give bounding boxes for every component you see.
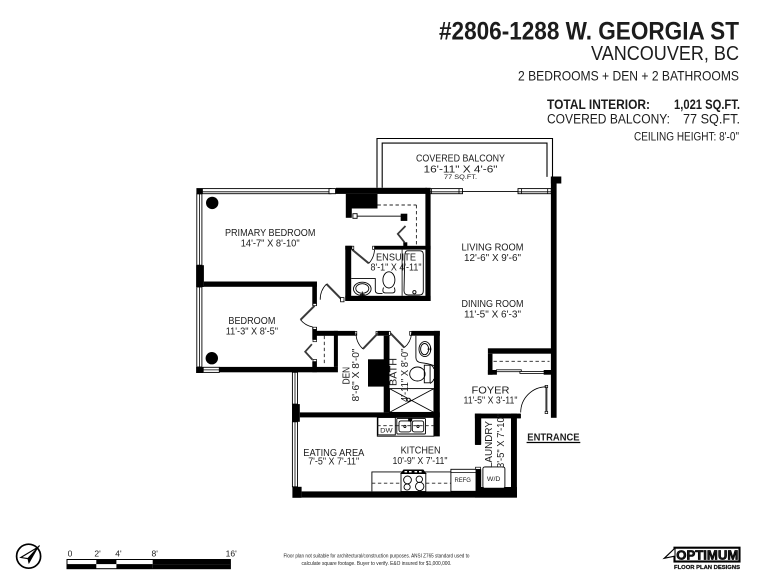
svg-text:4': 4' — [115, 548, 122, 558]
svg-text:TOTAL INTERIOR:: TOTAL INTERIOR: — [547, 97, 650, 112]
svg-text:KITCHEN: KITCHEN — [401, 446, 441, 457]
svg-text:2 BEDROOMS + DEN + 2 BATHROOMS: 2 BEDROOMS + DEN + 2 BATHROOMS — [518, 68, 739, 84]
svg-text:FLOOR PLAN DESIGNS: FLOOR PLAN DESIGNS — [674, 565, 740, 571]
svg-text:BATH: BATH — [388, 358, 399, 386]
svg-text:OPTIMUM: OPTIMUM — [676, 548, 738, 563]
svg-text:DINING ROOM: DINING ROOM — [462, 299, 524, 310]
svg-text:8': 8' — [152, 548, 159, 558]
svg-text:12'-6" X 9'-6": 12'-6" X 9'-6" — [464, 253, 521, 264]
svg-text:14'-7" X 8'-10": 14'-7" X 8'-10" — [241, 238, 300, 249]
svg-text:10'-9" X 7'-11": 10'-9" X 7'-11" — [393, 456, 448, 467]
svg-text:REFG: REFG — [454, 477, 471, 484]
svg-text:11'-5" X 3'-11": 11'-5" X 3'-11" — [464, 395, 518, 406]
svg-text:0: 0 — [68, 548, 73, 558]
svg-text:calculate square footage. Buye: calculate square footage. Buyer to verif… — [302, 561, 452, 567]
svg-text:77 SQ.FT.: 77 SQ.FT. — [444, 174, 477, 181]
svg-text:11'-3" X 8'-5": 11'-3" X 8'-5" — [226, 326, 279, 337]
svg-text:4'-11" X 8'-0": 4'-11" X 8'-0" — [400, 348, 411, 402]
svg-text:COVERED BALCONY: COVERED BALCONY — [416, 154, 505, 165]
svg-text:2': 2' — [94, 548, 101, 558]
svg-text:8'-1" X 4'-11": 8'-1" X 4'-11" — [371, 263, 422, 274]
svg-text:VANCOUVER, BC: VANCOUVER, BC — [591, 43, 739, 65]
svg-text:COVERED BALCONY:: COVERED BALCONY: — [547, 112, 670, 127]
svg-text:16': 16' — [226, 548, 237, 558]
svg-text:ENSUITE: ENSUITE — [376, 252, 416, 263]
svg-text:7'-5" X 7'-11": 7'-5" X 7'-11" — [308, 457, 359, 468]
svg-text:CEILING HEIGHT: 8'-0": CEILING HEIGHT: 8'-0" — [634, 131, 739, 143]
svg-text:LAUNDRY: LAUNDRY — [484, 421, 495, 468]
svg-text:3'-5" X 7'-10": 3'-5" X 7'-10" — [496, 414, 507, 468]
svg-text:W/D: W/D — [487, 476, 501, 483]
svg-text:LIVING ROOM: LIVING ROOM — [462, 243, 524, 254]
svg-text:ENTRANCE: ENTRANCE — [527, 431, 579, 443]
svg-text:DW: DW — [380, 427, 393, 434]
svg-text:1,021 SQ.FT.: 1,021 SQ.FT. — [674, 97, 740, 112]
svg-text:#2806-1288 W. GEORGIA ST: #2806-1288 W. GEORGIA ST — [439, 18, 739, 46]
svg-text:Floor plan not suitable for ar: Floor plan not suitable for architectura… — [284, 554, 470, 560]
svg-text:77 SQ.FT.: 77 SQ.FT. — [683, 112, 740, 127]
svg-text:8'-6" X 8'-0": 8'-6" X 8'-0" — [351, 348, 362, 401]
svg-text:11'-5" X 6'-3": 11'-5" X 6'-3" — [464, 310, 521, 321]
